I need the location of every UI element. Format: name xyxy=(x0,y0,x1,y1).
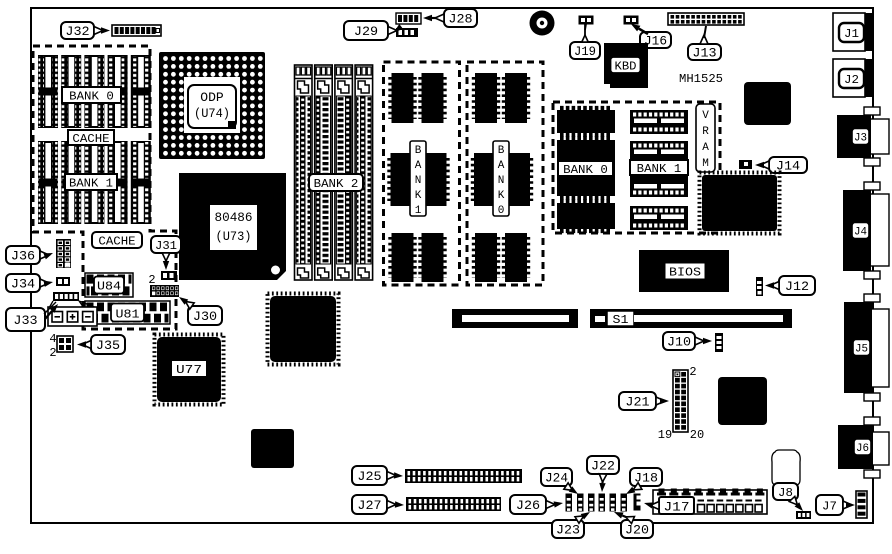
svg-text:J27: J27 xyxy=(357,498,381,513)
svg-text:J29: J29 xyxy=(354,24,378,39)
svg-text:J30: J30 xyxy=(193,309,217,324)
svg-text:J33: J33 xyxy=(13,313,37,328)
svg-text:J12: J12 xyxy=(785,279,809,294)
svg-text:BANK 0: BANK 0 xyxy=(563,163,608,177)
svg-text:J13: J13 xyxy=(692,46,716,61)
svg-text:J3: J3 xyxy=(854,133,867,145)
svg-text:ODP: ODP xyxy=(200,90,224,105)
svg-text:BANK 1: BANK 1 xyxy=(637,162,682,176)
svg-text:U77: U77 xyxy=(176,363,202,377)
svg-text:J1: J1 xyxy=(844,27,859,41)
svg-text:A: A xyxy=(702,142,709,154)
svg-text:A: A xyxy=(415,160,422,172)
svg-text:J4: J4 xyxy=(854,227,867,239)
svg-text:K: K xyxy=(415,190,422,202)
svg-text:J24: J24 xyxy=(545,471,568,486)
svg-text:R: R xyxy=(702,126,709,138)
svg-text:2: 2 xyxy=(148,273,155,287)
svg-text:CACHE: CACHE xyxy=(98,234,135,248)
svg-text:S1: S1 xyxy=(613,313,629,327)
svg-text:J22: J22 xyxy=(591,459,615,474)
svg-text:80486: 80486 xyxy=(215,210,253,225)
svg-text:2: 2 xyxy=(49,346,56,360)
svg-text:MH1525: MH1525 xyxy=(679,72,723,86)
svg-text:N: N xyxy=(415,175,422,187)
svg-text:M: M xyxy=(702,158,709,170)
svg-text:1: 1 xyxy=(415,205,422,217)
svg-text:J23: J23 xyxy=(556,523,580,538)
svg-text:J31: J31 xyxy=(155,239,177,253)
svg-text:J21: J21 xyxy=(625,395,649,410)
svg-text:(U74): (U74) xyxy=(194,107,230,121)
svg-text:N: N xyxy=(498,175,505,187)
svg-text:KBD: KBD xyxy=(615,59,637,73)
svg-text:BIOS: BIOS xyxy=(669,266,701,280)
svg-text:20: 20 xyxy=(690,428,704,442)
svg-text:4: 4 xyxy=(49,332,56,346)
svg-text:J17: J17 xyxy=(664,500,690,515)
svg-text:J2: J2 xyxy=(844,73,859,87)
svg-text:J36: J36 xyxy=(11,249,35,264)
svg-text:19: 19 xyxy=(658,428,672,442)
svg-text:J7: J7 xyxy=(822,499,837,513)
svg-text:J20: J20 xyxy=(625,523,649,538)
svg-text:J34: J34 xyxy=(11,277,35,292)
svg-text:J19: J19 xyxy=(574,44,596,59)
svg-text:B: B xyxy=(498,145,505,157)
svg-text:J8: J8 xyxy=(778,486,793,500)
svg-text:K: K xyxy=(498,190,505,202)
svg-text:B: B xyxy=(415,145,422,157)
svg-text:A: A xyxy=(498,160,505,172)
svg-text:V: V xyxy=(702,110,709,122)
svg-text:(U73): (U73) xyxy=(216,230,252,244)
svg-text:U81: U81 xyxy=(116,308,140,322)
svg-text:J25: J25 xyxy=(357,469,381,484)
svg-text:BANK 0: BANK 0 xyxy=(69,89,114,103)
svg-text:CACHE: CACHE xyxy=(72,132,109,146)
svg-text:J35: J35 xyxy=(96,338,120,353)
svg-text:J26: J26 xyxy=(516,498,540,513)
svg-text:U84: U84 xyxy=(97,280,121,294)
svg-text:J6: J6 xyxy=(856,443,869,455)
svg-text:J10: J10 xyxy=(667,335,691,350)
svg-text:BANK 2: BANK 2 xyxy=(314,177,359,191)
svg-text:BANK 1: BANK 1 xyxy=(69,176,113,190)
svg-text:J28: J28 xyxy=(448,12,472,27)
svg-text:J32: J32 xyxy=(65,24,89,39)
svg-text:2: 2 xyxy=(689,365,696,379)
svg-text:J5: J5 xyxy=(855,344,868,356)
svg-text:0: 0 xyxy=(498,205,505,217)
